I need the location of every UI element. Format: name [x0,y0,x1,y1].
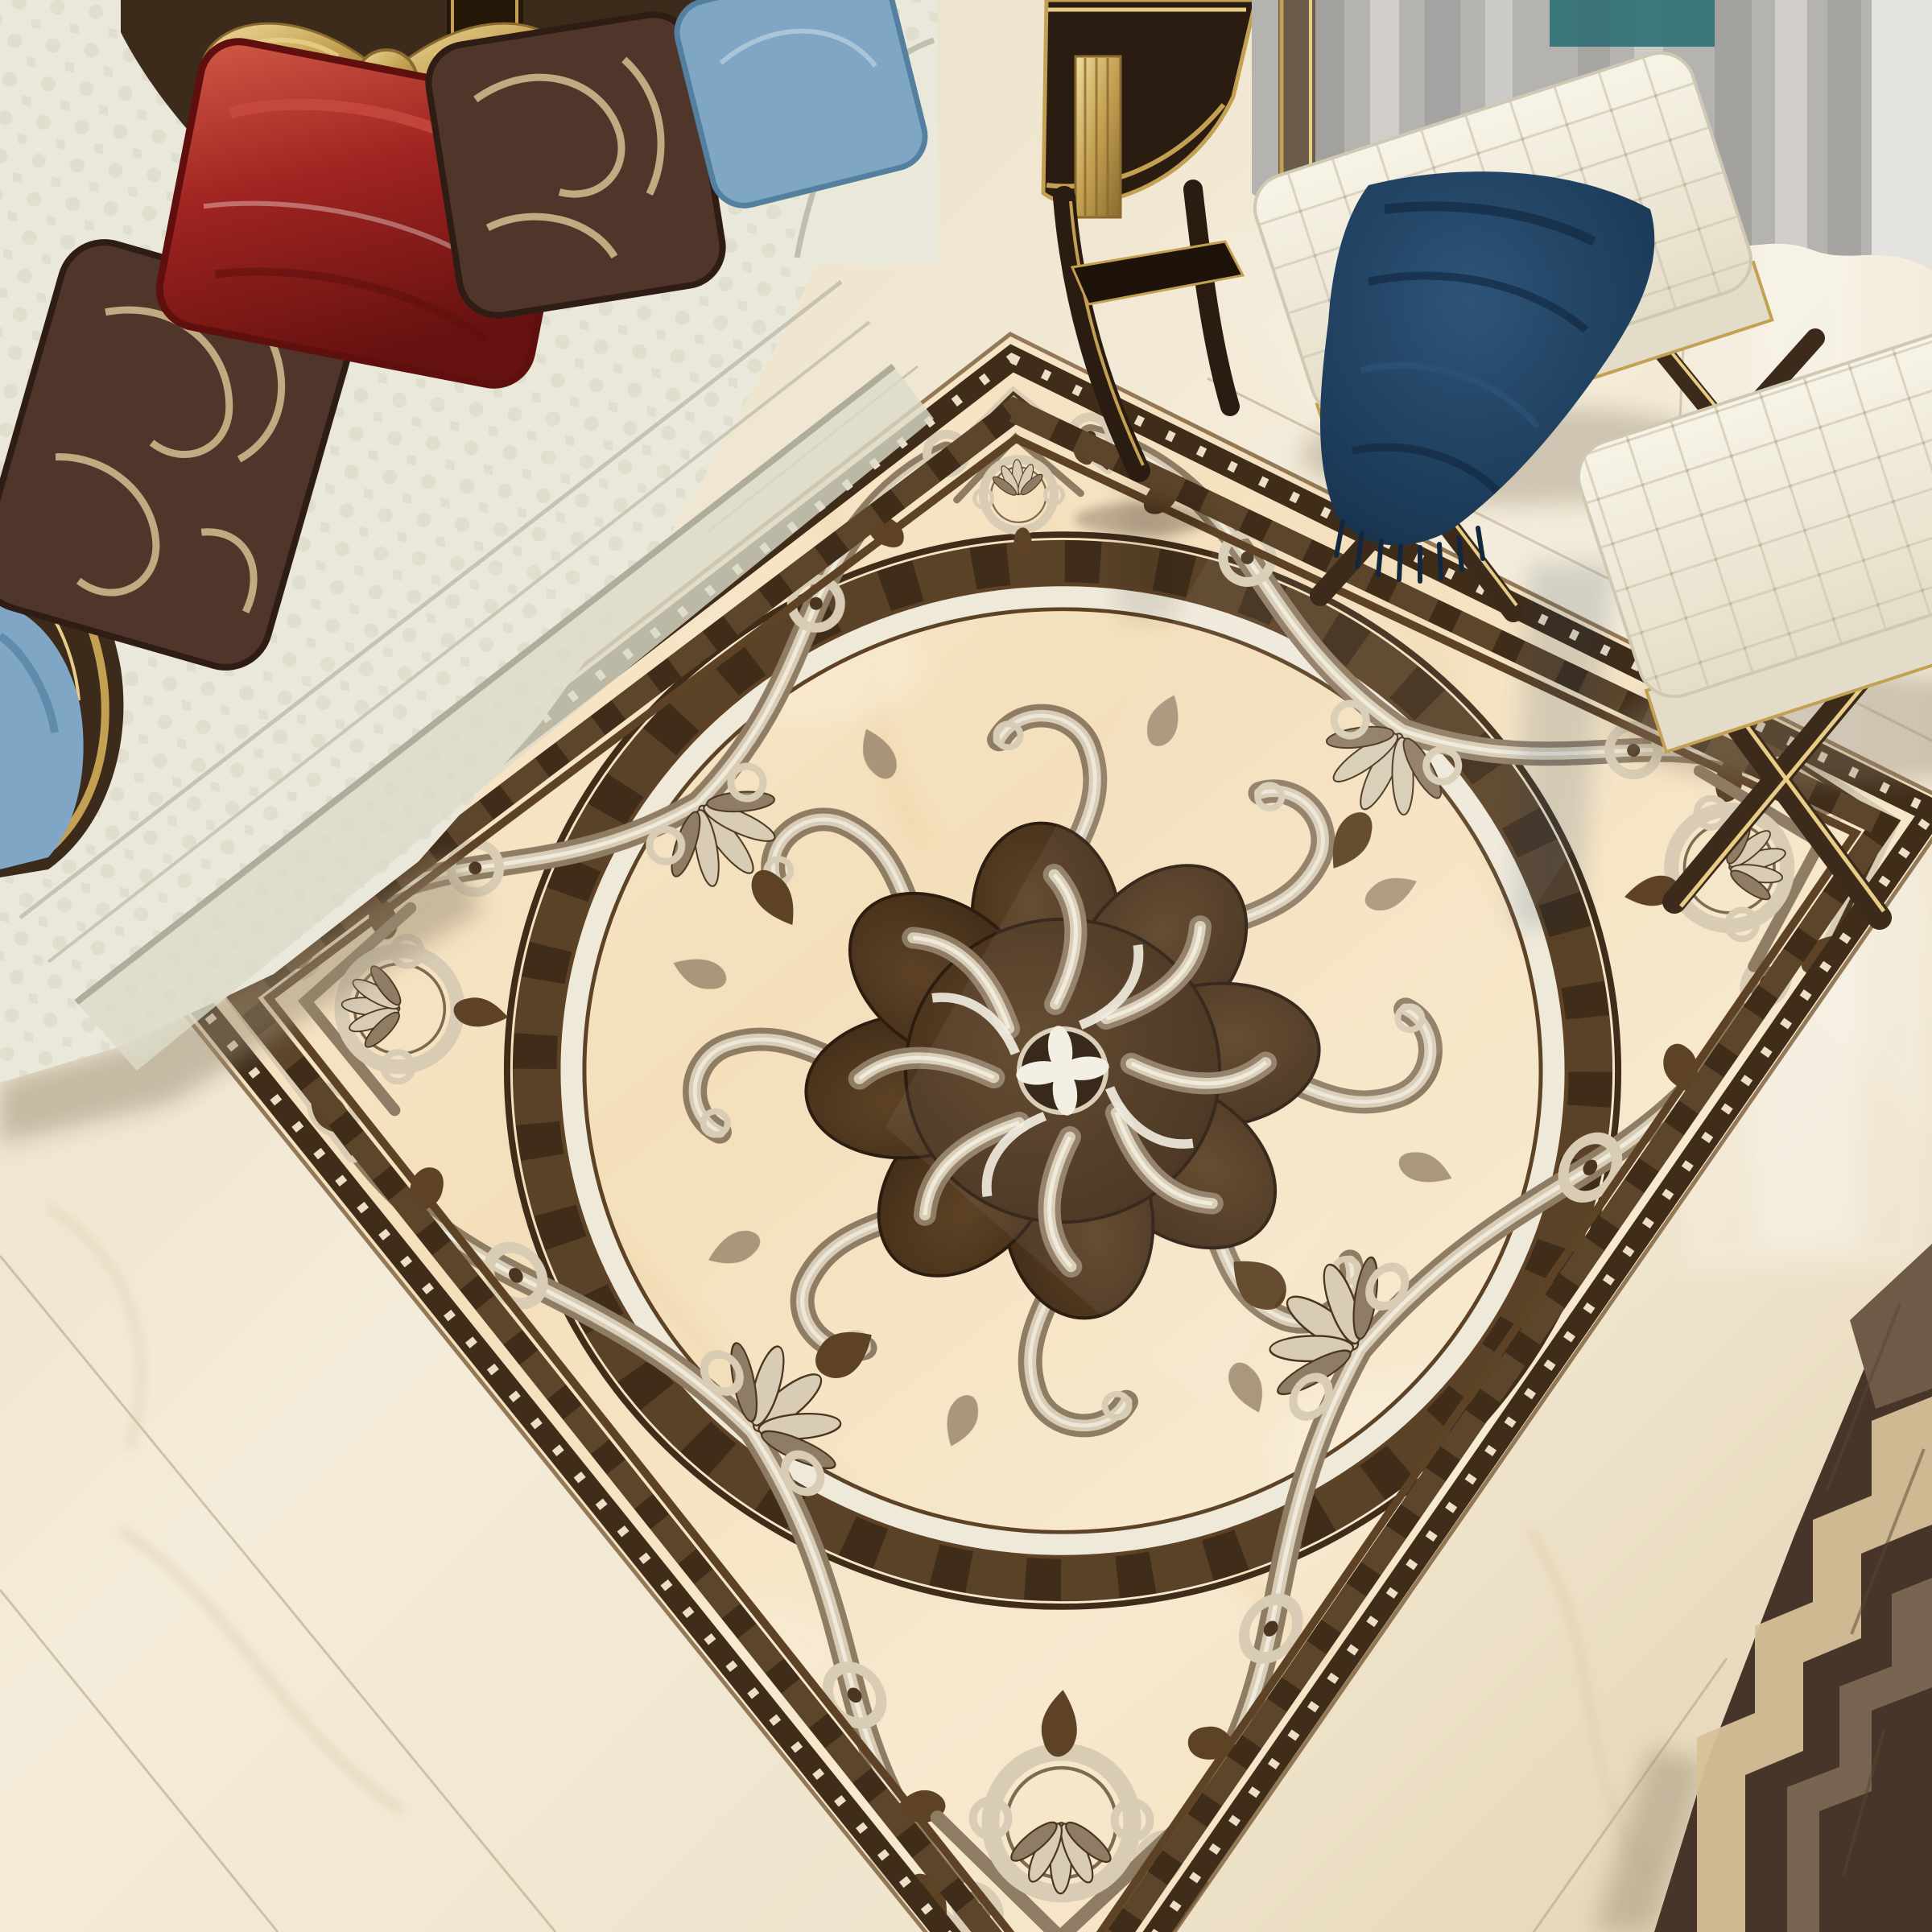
scene-photo [0,0,1932,1932]
sheer-window-panel [1872,0,1932,274]
teal-valance [1550,0,1715,47]
gold-fan-ornament [1075,56,1121,217]
table-reflection-smear [1119,483,1175,620]
living-room-photo [0,0,1932,1932]
